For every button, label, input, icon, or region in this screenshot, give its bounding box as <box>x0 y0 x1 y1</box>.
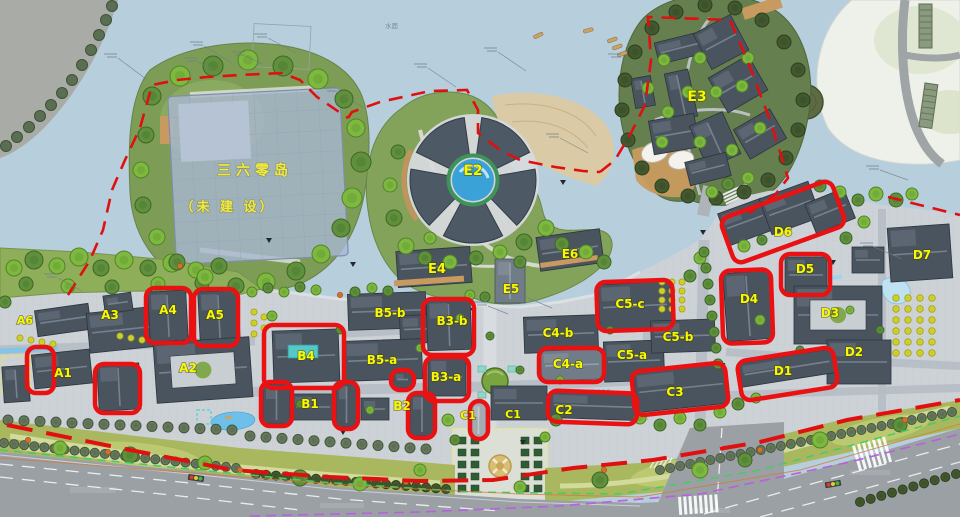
tree <box>876 326 884 334</box>
tree <box>263 283 273 293</box>
tree <box>6 260 22 276</box>
tree <box>929 328 935 334</box>
tree <box>893 350 899 356</box>
tree <box>654 419 666 431</box>
tree <box>867 424 876 433</box>
hedge <box>534 461 542 468</box>
tree <box>920 479 929 488</box>
tree <box>766 444 775 453</box>
zone-label-b3-a: B3-a <box>431 370 462 384</box>
bush <box>57 88 68 99</box>
tree <box>666 464 675 473</box>
hedge <box>471 485 479 492</box>
tree <box>538 220 554 236</box>
tree <box>412 482 421 491</box>
tree <box>757 235 767 245</box>
tree <box>847 428 856 437</box>
tree <box>857 426 866 435</box>
tree <box>90 448 99 457</box>
hedge <box>534 485 542 492</box>
zone-label-c5-a: C5-a <box>617 348 647 362</box>
tree <box>251 309 257 315</box>
tree <box>480 292 490 302</box>
tree <box>405 443 415 453</box>
tree <box>179 423 189 433</box>
tree <box>852 194 864 206</box>
tree <box>694 419 706 431</box>
tree <box>422 483 431 492</box>
building <box>97 363 141 411</box>
tree <box>761 173 775 187</box>
tree <box>929 317 935 323</box>
building <box>852 247 884 273</box>
zone-label-d7: D7 <box>913 248 931 262</box>
tree <box>738 453 752 467</box>
tree <box>937 410 946 419</box>
tree <box>292 470 308 486</box>
tree <box>684 270 696 282</box>
tree <box>139 337 145 343</box>
tree <box>170 66 190 86</box>
tree <box>272 471 281 480</box>
tree <box>728 1 742 15</box>
zone-label-c5-c: C5-c <box>615 297 644 311</box>
bush <box>86 45 97 56</box>
tree <box>25 251 43 269</box>
tree <box>28 337 34 343</box>
tree <box>893 328 899 334</box>
bush <box>67 75 78 86</box>
tree <box>907 416 916 425</box>
tree <box>602 468 607 473</box>
tree <box>929 350 935 356</box>
tree <box>917 414 926 423</box>
tree <box>138 127 154 143</box>
tree <box>791 123 805 137</box>
bush <box>77 60 88 71</box>
tree <box>163 422 173 432</box>
zone-label-e2: E2 <box>463 163 482 179</box>
tree <box>261 314 267 320</box>
zone-label-d6: D6 <box>774 225 792 239</box>
tree <box>35 416 45 426</box>
tree <box>325 437 335 447</box>
tree <box>707 311 717 321</box>
tree <box>679 288 685 294</box>
tree <box>140 260 156 276</box>
tree <box>147 421 157 431</box>
tree <box>694 52 706 64</box>
tree <box>389 442 399 452</box>
tree <box>51 417 61 427</box>
tree <box>676 462 685 471</box>
tree <box>347 119 365 137</box>
bush <box>35 111 46 122</box>
tree <box>710 86 722 98</box>
tree <box>905 350 911 356</box>
tree <box>211 424 221 434</box>
tree <box>10 440 19 449</box>
tree <box>309 436 319 446</box>
tree <box>350 287 360 297</box>
zone-label-b2: B2 <box>393 399 411 413</box>
tree <box>597 255 611 269</box>
tree <box>247 287 257 297</box>
tree <box>261 432 271 442</box>
tree <box>469 251 483 265</box>
tree <box>618 73 632 87</box>
tree <box>888 488 897 497</box>
tree <box>917 306 923 312</box>
bush <box>24 122 35 133</box>
zone-label-e6: E6 <box>562 247 579 261</box>
tree <box>755 13 769 27</box>
bush <box>94 30 105 41</box>
tree <box>837 430 846 439</box>
tree <box>391 145 405 159</box>
tree <box>39 339 45 345</box>
planter <box>508 366 516 372</box>
tree <box>245 431 255 441</box>
tree <box>579 245 593 259</box>
zone-label-e5: E5 <box>503 282 520 296</box>
tree <box>373 440 383 450</box>
tree <box>135 197 151 213</box>
zone-label-c2: C2 <box>555 403 572 417</box>
tree <box>335 90 353 108</box>
zone-label-d4: D4 <box>740 292 758 306</box>
tree <box>105 280 119 294</box>
tree <box>755 315 765 325</box>
tree <box>893 339 899 345</box>
tree <box>277 433 287 443</box>
tree <box>238 468 243 473</box>
hedge <box>471 449 479 456</box>
tree <box>679 306 685 312</box>
tree <box>67 418 77 428</box>
tree <box>0 439 9 448</box>
tree <box>442 414 454 426</box>
tree <box>195 424 205 434</box>
tree <box>386 210 402 226</box>
tree <box>279 287 289 297</box>
tree <box>308 69 328 89</box>
tree <box>659 288 665 294</box>
tree <box>893 295 899 301</box>
zone-label-e3: E3 <box>687 89 706 105</box>
tree <box>679 297 685 303</box>
zone-label-d1: D1 <box>774 364 792 378</box>
tree <box>442 485 451 494</box>
tree <box>856 498 865 507</box>
tree <box>869 187 883 201</box>
tree <box>40 443 49 452</box>
tree <box>424 232 436 244</box>
site-plan-viewport: A6A3A4A5A1A2B5-bB3-bB4B5-aB3-aB1B2C1C1C4… <box>0 0 960 517</box>
tree <box>893 317 899 323</box>
tree <box>99 419 109 429</box>
tree <box>211 258 227 274</box>
zone-label-c5-b: C5-b <box>663 330 694 344</box>
tree <box>133 162 149 178</box>
tree <box>796 438 805 447</box>
tree <box>357 439 367 449</box>
zone-label-d3: D3 <box>821 306 839 320</box>
tree <box>80 447 89 456</box>
tree <box>414 464 426 476</box>
zone-label-c1: C1 <box>460 409 476 422</box>
zone-label-a2: A2 <box>179 361 197 375</box>
tree <box>662 106 674 118</box>
zone-label-c3: C3 <box>666 385 683 399</box>
tree <box>917 328 923 334</box>
zone-label-a1: A1 <box>54 366 72 380</box>
tree <box>948 408 957 417</box>
tree <box>169 254 185 270</box>
tree <box>711 343 721 353</box>
tree <box>227 425 237 435</box>
building <box>361 398 389 420</box>
zone-label-c1: C1 <box>505 408 521 421</box>
tree <box>754 122 766 134</box>
tree <box>893 306 899 312</box>
tree <box>699 247 709 257</box>
island-note-line2: （未 建 设） <box>180 199 275 215</box>
tree <box>128 335 134 341</box>
hedge <box>521 461 529 468</box>
tree <box>70 248 88 266</box>
zone-label-a4: A4 <box>159 303 177 317</box>
tree <box>421 444 431 454</box>
tree <box>709 327 719 337</box>
tree <box>540 432 550 442</box>
tree <box>726 144 738 156</box>
tree <box>905 317 911 323</box>
tree <box>846 306 854 314</box>
tree <box>877 491 886 500</box>
tree <box>738 240 750 252</box>
hedge <box>521 449 529 456</box>
tree <box>49 258 65 274</box>
tree <box>131 421 141 431</box>
tree <box>658 54 670 66</box>
tree <box>342 188 362 208</box>
tree <box>737 185 751 199</box>
tree <box>93 260 109 276</box>
tree <box>251 331 257 337</box>
tree <box>516 234 532 250</box>
tree <box>905 295 911 301</box>
tree <box>812 432 828 448</box>
tree <box>267 311 277 321</box>
hedge <box>458 449 466 456</box>
tree <box>311 285 321 295</box>
zone-label-b5-b: B5-b <box>374 306 405 320</box>
tree <box>898 485 907 494</box>
tree <box>692 462 708 478</box>
tree <box>929 339 935 345</box>
steps <box>919 4 932 48</box>
tree <box>110 450 119 459</box>
tree <box>952 470 960 479</box>
tree <box>906 188 918 200</box>
tree <box>295 282 305 292</box>
tree <box>30 442 39 451</box>
tree <box>655 179 669 193</box>
tree <box>656 136 668 148</box>
tree <box>238 50 258 70</box>
island-note-line1: 三六零岛 <box>217 162 293 179</box>
tree <box>917 350 923 356</box>
zone-label-d2: D2 <box>845 345 863 359</box>
tree <box>486 332 494 340</box>
tree <box>143 87 161 105</box>
tree <box>917 317 923 323</box>
tree <box>701 263 711 273</box>
tree <box>251 320 257 326</box>
tree <box>17 335 23 341</box>
tree <box>722 178 734 190</box>
tree <box>917 339 923 345</box>
tree <box>106 450 111 455</box>
tree <box>659 306 665 312</box>
building <box>336 383 357 427</box>
tree <box>656 466 665 475</box>
tree <box>917 295 923 301</box>
tree <box>516 366 524 374</box>
hedge <box>471 473 479 480</box>
tree <box>341 438 351 448</box>
tree <box>909 482 918 491</box>
tree <box>19 277 33 291</box>
tree <box>398 238 414 254</box>
tree <box>698 0 712 12</box>
tree <box>905 339 911 345</box>
tree <box>117 333 123 339</box>
tree <box>679 279 685 285</box>
zone-label-b3-b: B3-b <box>436 314 467 328</box>
tree <box>929 295 935 301</box>
tree <box>930 476 939 485</box>
tree <box>706 456 715 465</box>
tree <box>777 35 791 49</box>
tree <box>0 296 11 308</box>
tree <box>705 295 715 305</box>
tree <box>151 455 160 464</box>
tree <box>332 219 350 237</box>
zone-label-c4-b: C4-b <box>543 326 574 340</box>
bush <box>12 132 23 143</box>
tree <box>635 161 649 175</box>
tree <box>53 441 67 455</box>
tree <box>703 279 713 289</box>
planter <box>478 366 486 372</box>
tree <box>293 435 303 445</box>
tree <box>903 418 908 423</box>
tree <box>726 452 735 461</box>
building <box>723 270 774 341</box>
hedge <box>458 461 466 468</box>
tree <box>50 341 56 347</box>
tree <box>929 306 935 312</box>
tree <box>927 412 936 421</box>
tree <box>367 283 377 293</box>
tree <box>791 63 805 77</box>
tree <box>26 438 31 443</box>
zone-label-a5: A5 <box>206 308 224 322</box>
tree <box>312 245 330 263</box>
tree <box>905 306 911 312</box>
tree <box>83 419 93 429</box>
tree <box>287 262 305 280</box>
zone-label-b5-a: B5-a <box>367 353 398 367</box>
zone-label-a3: A3 <box>101 308 119 322</box>
tree <box>786 440 795 449</box>
zone-label-e4: E4 <box>428 262 446 277</box>
planter <box>478 392 486 398</box>
tree <box>115 251 133 269</box>
tree <box>70 446 79 455</box>
tree <box>866 494 875 503</box>
tree <box>338 293 343 298</box>
water-surface-label: 水面 <box>385 21 399 30</box>
zone-label-b4: B4 <box>297 349 315 363</box>
bush <box>46 100 57 111</box>
bush <box>107 1 118 12</box>
tree <box>432 484 441 493</box>
hedge <box>471 461 479 468</box>
tree <box>877 422 886 431</box>
tree <box>736 80 748 92</box>
tree <box>694 136 706 148</box>
zone-label-b1: B1 <box>301 397 319 411</box>
tree <box>351 152 371 172</box>
tree <box>716 454 725 463</box>
tree <box>659 297 665 303</box>
zone-label-d5: D5 <box>796 262 814 276</box>
tree <box>366 406 374 414</box>
tree <box>758 448 763 453</box>
tree <box>732 398 744 410</box>
tree <box>905 328 911 334</box>
tree <box>776 442 785 451</box>
tree <box>681 189 695 203</box>
tree <box>645 21 659 35</box>
tree <box>840 232 852 244</box>
tree <box>197 269 213 285</box>
tree <box>858 216 870 228</box>
tree <box>514 256 526 268</box>
tree <box>19 416 29 426</box>
tree <box>383 286 393 296</box>
tree <box>178 264 183 269</box>
bush <box>101 15 112 26</box>
tree <box>592 472 608 488</box>
bush <box>1 141 12 152</box>
tree <box>514 481 526 493</box>
tree <box>149 229 165 245</box>
hedge <box>534 449 542 456</box>
master-plan-map: A6A3A4A5A1A2B5-bB3-bB4B5-aB3-aB1B2C1C1C4… <box>0 0 960 517</box>
zone-label-c4-a: C4-a <box>553 357 583 371</box>
zone-label-a6: A6 <box>17 314 34 327</box>
tree <box>383 178 397 192</box>
tree <box>796 93 810 107</box>
tree <box>628 45 642 59</box>
tree <box>450 435 460 445</box>
tree <box>115 420 125 430</box>
tree <box>706 186 718 198</box>
